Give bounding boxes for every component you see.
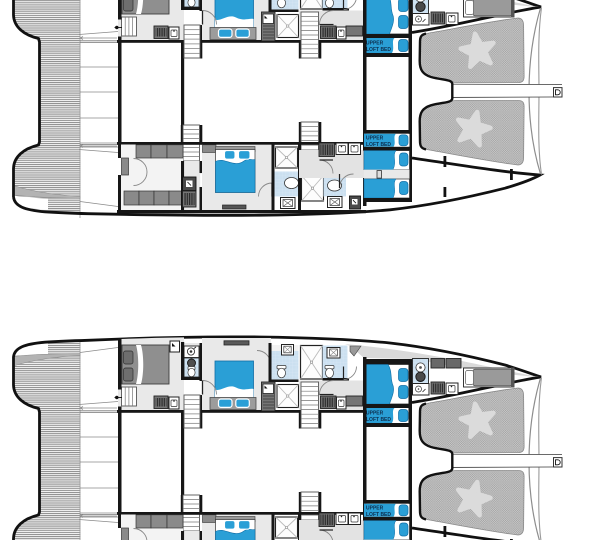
svg-text:UPPER: UPPER (366, 40, 384, 46)
svg-text:UPPER: UPPER (366, 410, 384, 416)
svg-text:LOFT BED: LOFT BED (366, 417, 391, 423)
svg-text:UPPER: UPPER (366, 136, 384, 142)
svg-text:LOFT BED: LOFT BED (366, 47, 391, 53)
svg-text:UPPER: UPPER (366, 506, 384, 512)
